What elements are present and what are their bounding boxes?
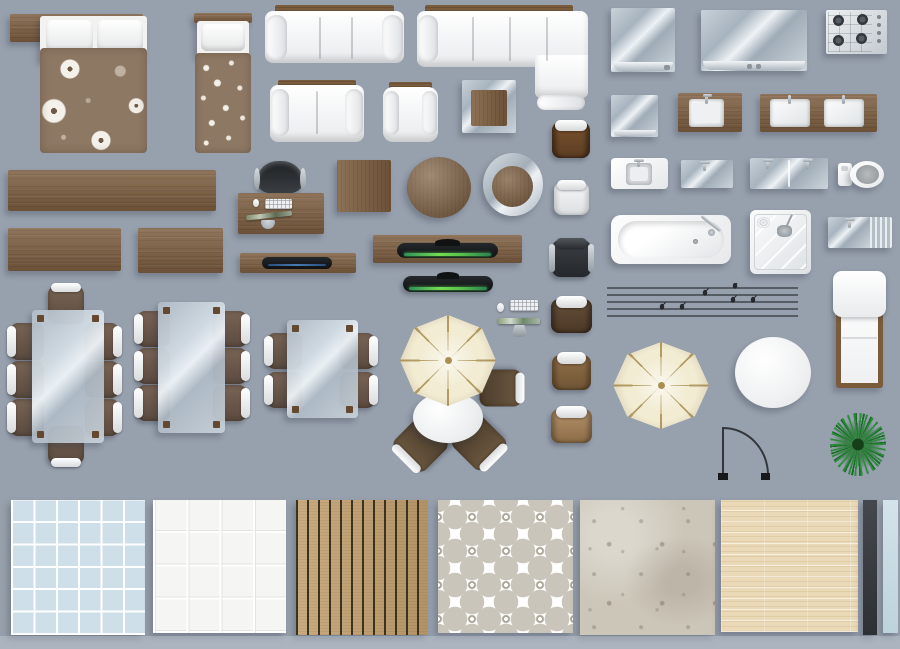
flat-tv (403, 276, 493, 292)
texture-ornament-tiles (438, 500, 573, 633)
faucet-icon (634, 159, 644, 162)
headrest (556, 296, 587, 308)
mouse-icon (253, 199, 259, 207)
sink-basin-inner (630, 167, 648, 181)
furniture-asset-sheet (0, 0, 900, 649)
patio-set (396, 313, 523, 471)
double-glass-washbasin (750, 158, 828, 189)
single-bed (194, 13, 252, 153)
headrest-towel (833, 271, 886, 317)
monitor-stand (261, 220, 275, 229)
texture-light-parquet (721, 500, 858, 632)
cushion-divider (509, 17, 511, 61)
faucet-icon (806, 161, 809, 169)
device-blue-edge (268, 264, 326, 266)
pillow (46, 20, 93, 51)
armrest (254, 168, 260, 190)
sideboard (8, 228, 121, 271)
blue-strip (883, 500, 898, 633)
office-desk (238, 193, 324, 234)
duvet (195, 53, 251, 153)
faucet-icon (803, 159, 813, 162)
appliance-top-wide (701, 10, 807, 71)
burner (856, 33, 867, 44)
cushion-divider (546, 17, 548, 61)
armrest (418, 15, 438, 62)
glass-dining-table (32, 310, 104, 443)
light-wood-chair (551, 409, 592, 443)
bathtub (611, 215, 731, 264)
headrest (555, 120, 587, 131)
table-leg-pad (292, 406, 299, 413)
drain (757, 217, 770, 228)
leather-chair (552, 122, 590, 158)
two-seat-sofa (270, 80, 364, 142)
chaise-lounge (836, 271, 883, 388)
drain (693, 239, 698, 244)
table-top (492, 166, 533, 207)
wood-board (138, 228, 223, 273)
table-leg-pad (213, 307, 220, 314)
texture-blue-tiles (11, 500, 145, 635)
cushion-divider (319, 17, 321, 59)
gas-cooktop (826, 10, 887, 54)
dark-wood-chair (551, 299, 592, 333)
tub-inner (618, 221, 724, 258)
faucet-icon (848, 220, 851, 228)
texture-wood-deck (296, 500, 428, 635)
front-band (703, 61, 805, 70)
bathroom-sink-unit (611, 158, 668, 189)
pillow (97, 20, 143, 51)
cushion-seam (842, 337, 877, 339)
double-bed (10, 13, 147, 153)
headrest (556, 406, 587, 418)
burner (833, 15, 844, 26)
front-band (613, 130, 656, 136)
dark-strip (863, 500, 877, 635)
armrest (266, 15, 287, 60)
basin-divider (788, 160, 790, 187)
potted-plant (830, 413, 886, 476)
keyboard-icon (265, 199, 292, 209)
office-chair (257, 161, 303, 194)
faucet-icon (845, 218, 855, 221)
appliance-top-small (611, 8, 675, 72)
faucet-icon (788, 95, 791, 104)
mouse-icon (497, 303, 504, 312)
table-leg-pad (92, 431, 99, 438)
table-leg-pad (346, 325, 353, 332)
flat-tv (397, 243, 498, 258)
wires-with-birds (605, 283, 800, 323)
round-glass-table (483, 153, 543, 216)
bottom-band (0, 636, 900, 649)
toilet (838, 161, 884, 188)
glass-side-table (462, 80, 516, 133)
glass-panel (611, 95, 658, 137)
glass-washbasin (681, 160, 733, 188)
dining-set-6 (135, 300, 249, 435)
table-leg-pad (213, 421, 220, 428)
monitor-icon (246, 211, 292, 221)
table-leg-pad (37, 431, 44, 438)
device-slab (262, 257, 332, 269)
glass-dining-table (287, 320, 358, 418)
flush-button (841, 166, 848, 171)
armrest (384, 91, 399, 135)
dining-set-8 (8, 286, 124, 466)
utility-sink (828, 217, 892, 248)
control-knob (877, 31, 881, 35)
pillow (201, 24, 245, 51)
armrest (588, 244, 594, 272)
burner (833, 35, 844, 46)
media-shelf (240, 253, 356, 273)
black-chair (552, 240, 591, 277)
armrest (300, 168, 306, 190)
double-kitchen-sink (760, 94, 877, 132)
duvet (40, 48, 147, 153)
headrest (557, 352, 586, 364)
round-white-table (735, 337, 811, 408)
cushion-divider (472, 17, 474, 61)
dining-set-4 (265, 318, 377, 420)
cushion-divider (316, 91, 318, 134)
table-leg-pad (346, 406, 353, 413)
shower-cabin (750, 210, 811, 274)
tv-console (373, 235, 522, 263)
wood-chair (552, 355, 591, 390)
keyboard-icon (510, 300, 538, 311)
handle (756, 64, 761, 69)
armrest (537, 95, 585, 110)
white-chair (554, 182, 589, 215)
burner (857, 14, 868, 25)
headrest (557, 180, 586, 190)
handle (747, 64, 752, 69)
kitchen-sink (678, 93, 742, 132)
table-leg-pad (92, 315, 99, 322)
sink-basin-inner (693, 103, 720, 123)
shower-handle (708, 229, 715, 236)
table-leg-pad (163, 421, 170, 428)
drainboard (870, 217, 892, 248)
cushion-divider (351, 17, 353, 59)
door-swing-symbol (715, 423, 771, 481)
control-knob (877, 23, 881, 27)
armrest (422, 91, 437, 135)
sofa-corner-section (535, 55, 588, 98)
table-leg-pad (292, 325, 299, 332)
armrest (382, 15, 403, 60)
parasol (613, 342, 709, 429)
glass-dining-table (158, 302, 225, 433)
armrest (549, 244, 555, 272)
control-knob (877, 39, 881, 43)
texture-concrete (580, 500, 715, 635)
faucet-icon (703, 94, 712, 97)
headrest (556, 238, 587, 248)
table-leg-pad (163, 307, 170, 314)
texture-white-tiles (153, 500, 286, 633)
bowl-inner (856, 165, 879, 184)
armrest (271, 89, 289, 136)
long-sideboard (8, 170, 216, 211)
handle (664, 65, 670, 70)
patio-umbrella (400, 315, 496, 406)
faucet-icon (763, 159, 773, 162)
faucet-icon (703, 163, 706, 171)
armchair (383, 82, 438, 142)
faucet-icon (700, 161, 710, 164)
table-leg-pad (37, 315, 44, 322)
faucet-icon (842, 95, 845, 104)
table-top (471, 90, 507, 126)
three-seat-sofa (265, 5, 404, 63)
round-coffee-table (407, 157, 471, 218)
control-knob (877, 15, 881, 19)
square-coffee-table (337, 160, 391, 212)
armrest (345, 89, 363, 136)
faucet-icon (766, 161, 769, 169)
